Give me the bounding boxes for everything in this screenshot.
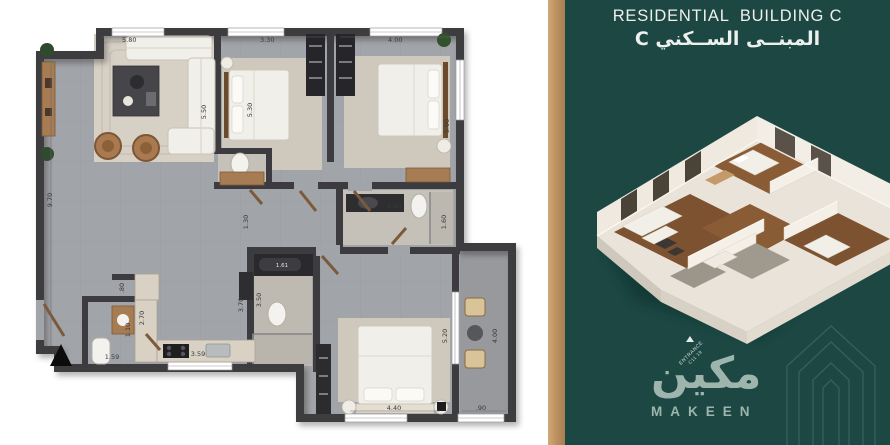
brochure-page: 5.80 3.30 4.00 9.70 5.50 5.30 5.00 2.60 …: [0, 0, 890, 445]
floor-plan-2d: 5.80 3.30 4.00 9.70 5.50 5.30 5.00 2.60 …: [0, 0, 548, 445]
bed-headboard: [224, 72, 229, 138]
info-panel: RESIDENTIAL BUILDING C المبنــى الســكني…: [565, 0, 890, 445]
sink: [206, 344, 230, 357]
dim-balcony-w: .90: [476, 404, 486, 412]
dim-living-w: 5.80: [122, 36, 136, 44]
dim-bed3-w: 4.00: [388, 36, 402, 44]
house-watermark-icon: [787, 326, 875, 445]
dim-kitchen-d: 2.70: [138, 311, 146, 325]
dim-wc-w: 1.59: [105, 353, 119, 361]
plant: [40, 147, 54, 161]
wardrobe: [336, 34, 355, 96]
wardrobe: [306, 34, 325, 96]
shower: [252, 334, 312, 364]
dim-hall-d: 9.70: [46, 193, 54, 207]
dim-kitchen-w: 3.59: [191, 350, 205, 358]
dresser: [406, 168, 450, 182]
dim-balcony-d: 4.00: [491, 329, 499, 343]
entrance-marker: [686, 336, 694, 342]
dim-bath1-d: 1.60: [440, 215, 448, 229]
dim-bath1-w: 2.60: [387, 202, 401, 210]
dim-bath2-w: 1.61: [276, 263, 288, 269]
vanity: [220, 172, 264, 185]
counter: [135, 300, 157, 362]
stove: [163, 344, 189, 358]
plant: [40, 43, 54, 57]
toilet: [268, 302, 286, 326]
balcony-table: [467, 325, 483, 341]
balcony-chair: [465, 298, 485, 316]
console-table: [42, 62, 55, 136]
dim-wc-d: 1.10: [124, 323, 132, 337]
dim-bed2-w: 3.30: [260, 36, 274, 44]
coffee-table: [113, 66, 159, 116]
plant: [437, 33, 451, 47]
dim-master-d: 5.20: [441, 329, 449, 343]
side-lamp: [437, 139, 451, 153]
dim-hall3-d: 3.50: [255, 293, 263, 307]
dim-bed3-d: 5.00: [443, 119, 451, 133]
wardrobe: [316, 344, 331, 414]
gold-divider: [548, 0, 565, 445]
brand-block: مكين MAKEEN: [651, 346, 761, 419]
side-lamp: [221, 57, 233, 69]
cabinet: [135, 274, 159, 300]
makeen-logo-latin: MAKEEN: [651, 404, 761, 419]
balcony: [465, 298, 485, 368]
dim-hall2-d: 3.70: [237, 298, 245, 312]
dim-niche: .80: [118, 283, 126, 293]
dim-master-w: 4.40: [387, 404, 401, 412]
balcony-chair: [465, 350, 485, 368]
dim-corridor: 1.30: [242, 215, 250, 229]
nightstand: [342, 400, 356, 414]
dim-bed2-d: 5.30: [246, 103, 254, 117]
dim-living-d: 5.50: [200, 105, 208, 119]
makeen-logo-arabic: مكين: [651, 346, 761, 401]
fridge: [239, 272, 253, 300]
sink: [411, 194, 427, 218]
